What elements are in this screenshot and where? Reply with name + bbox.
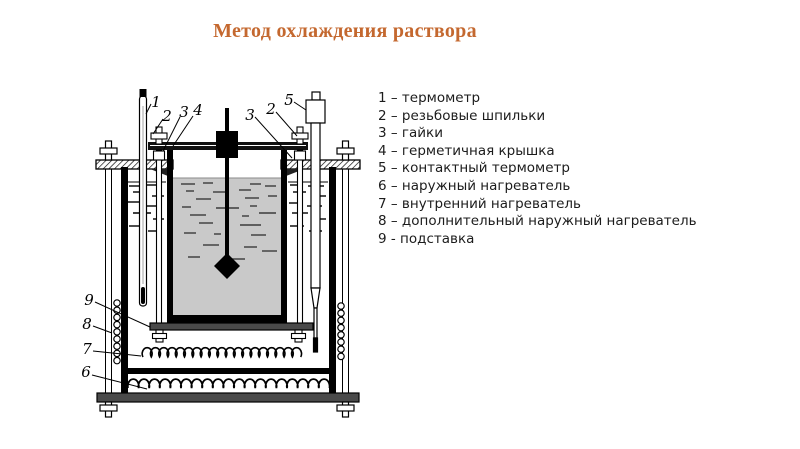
stand (150, 323, 313, 342)
callout-stud-right: 2 (265, 100, 276, 118)
callout-nuts-left: 3 (179, 103, 189, 121)
callout-extra-external-heater: 8 (82, 315, 92, 333)
thermometer (140, 89, 147, 306)
callout-nuts-right: 3 (245, 106, 255, 124)
callout-lid: 4 (192, 101, 203, 119)
callout-stud-left: 2 (161, 107, 172, 125)
callout-external-heater: 6 (81, 363, 91, 381)
callout-internal-heater: 7 (82, 340, 92, 358)
callout-stand: 9 (84, 291, 94, 309)
callout-contact-thermometer: 5 (284, 91, 294, 109)
base-plate (97, 393, 359, 417)
internal-heater-coil (142, 348, 301, 357)
callout-thermometer: 1 (151, 93, 161, 111)
apparatus-diagram: 1 2 3 4 3 2 5 9 8 7 6 (0, 0, 800, 449)
external-heater-coil (128, 379, 330, 388)
contact-thermometer (306, 92, 325, 352)
